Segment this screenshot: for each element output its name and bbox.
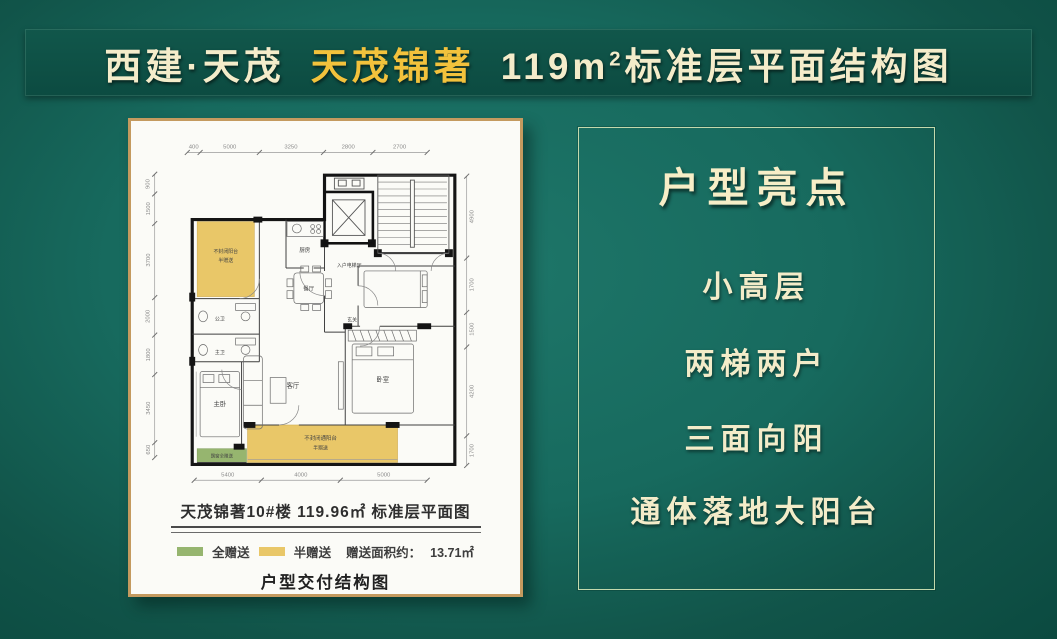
dim-right-3: 4200 [470, 384, 476, 398]
dim-top-1: 5000 [223, 145, 237, 151]
balcony-bottom-label: 不封闭通阳台 [304, 434, 337, 442]
header-banner: 西建·天茂 天茂锦著 119m2标准层平面结构图 [25, 29, 1032, 96]
title-divider [171, 526, 481, 533]
area-suffix: 标准层平面结构图 [625, 46, 953, 87]
master-bath-label: 主卫 [215, 349, 225, 356]
balcony-top-left-label: 不封闭阳台 [213, 248, 238, 255]
balcony-bottom-gift-label: 半赠送 [313, 445, 328, 452]
half-gift-label: 半赠送 [294, 542, 332, 561]
dim-left-5: 3450 [146, 401, 152, 415]
dining-label: 餐厅 [303, 285, 314, 293]
master-bedroom-label: 主卧 [213, 399, 226, 408]
half-gift-swatch [259, 547, 285, 556]
dim-right-4: 1700 [470, 443, 476, 457]
brand-name: 西建·天茂 [104, 36, 284, 90]
legend: 全赠送 半赠送 赠送面积约： 13.71㎡ [177, 542, 474, 561]
dim-top-2: 3250 [284, 145, 298, 151]
area-value: 119m [501, 46, 610, 87]
dim-left-0: 900 [146, 178, 152, 189]
dim-right-2: 1500 [470, 322, 476, 336]
kitchen-label: 厨房 [299, 246, 310, 254]
plan-title: 天茂锦著10#楼 119.96㎡ 标准层平面图 [180, 500, 470, 522]
foyer-label: 玄关 [347, 316, 357, 323]
dim-top-0: 400 [189, 145, 200, 151]
dim-top-4: 2700 [393, 145, 407, 151]
elevator-shaft [325, 178, 373, 243]
floor-plan-panel: 400 5000 3250 2800 2700 5400 4000 5000 9… [128, 118, 523, 597]
highlights-title: 户型亮点 [659, 154, 855, 214]
full-gift-swatch [177, 547, 203, 556]
balcony-top-left-gift-label: 半赠送 [218, 257, 233, 264]
highlight-item-3: 通体落地大阳台 [631, 487, 883, 531]
dim-top-3: 2800 [342, 145, 356, 151]
dim-right-1: 1700 [470, 277, 476, 291]
highlight-item-2: 三面向阳 [685, 414, 829, 458]
poster: 西建·天茂 天茂锦著 119m2标准层平面结构图 [0, 0, 1057, 639]
area-superscript: 2 [609, 48, 624, 70]
public-bath-label: 公卫 [215, 316, 225, 322]
core-walls [325, 243, 449, 253]
dim-bottom-0: 5400 [221, 472, 235, 478]
living-room-label: 客厅 [287, 380, 300, 389]
highlights-panel: 户型亮点 小高层 两梯两户 三面向阳 通体落地大阳台 [578, 127, 935, 590]
bedroom-label: 卧室 [376, 375, 389, 384]
highlight-item-0: 小高层 [703, 262, 811, 306]
dim-bottom-1: 4000 [294, 472, 308, 478]
project-name: 天茂锦著 [311, 36, 475, 90]
plan-footer: 户型交付结构图 [261, 569, 391, 593]
dim-left-2: 3700 [146, 253, 152, 267]
dim-bottom-2: 5000 [377, 472, 391, 478]
area-title: 119m2标准层平面结构图 [501, 36, 953, 90]
entry-hall-label: 入户电梯厅 [337, 262, 362, 269]
dim-left-6: 650 [146, 444, 152, 455]
gift-area-label: 赠送面积约： [346, 542, 421, 561]
gift-area-value: 13.71㎡ [430, 542, 474, 561]
staircase [378, 175, 449, 253]
full-gift-label: 全赠送 [212, 542, 250, 561]
dim-left-3: 2000 [146, 309, 152, 323]
highlight-item-1: 两梯两户 [685, 339, 829, 383]
bay-window-label: 飘窗全赠送 [211, 453, 234, 460]
dim-left-1: 1500 [146, 201, 152, 215]
door-arcs [222, 253, 449, 425]
dim-left-4: 1800 [146, 348, 152, 362]
dim-right-0: 4900 [470, 209, 476, 223]
balcony-bottom-area [248, 425, 398, 463]
floor-plan-svg: 400 5000 3250 2800 2700 5400 4000 5000 9… [131, 121, 520, 490]
